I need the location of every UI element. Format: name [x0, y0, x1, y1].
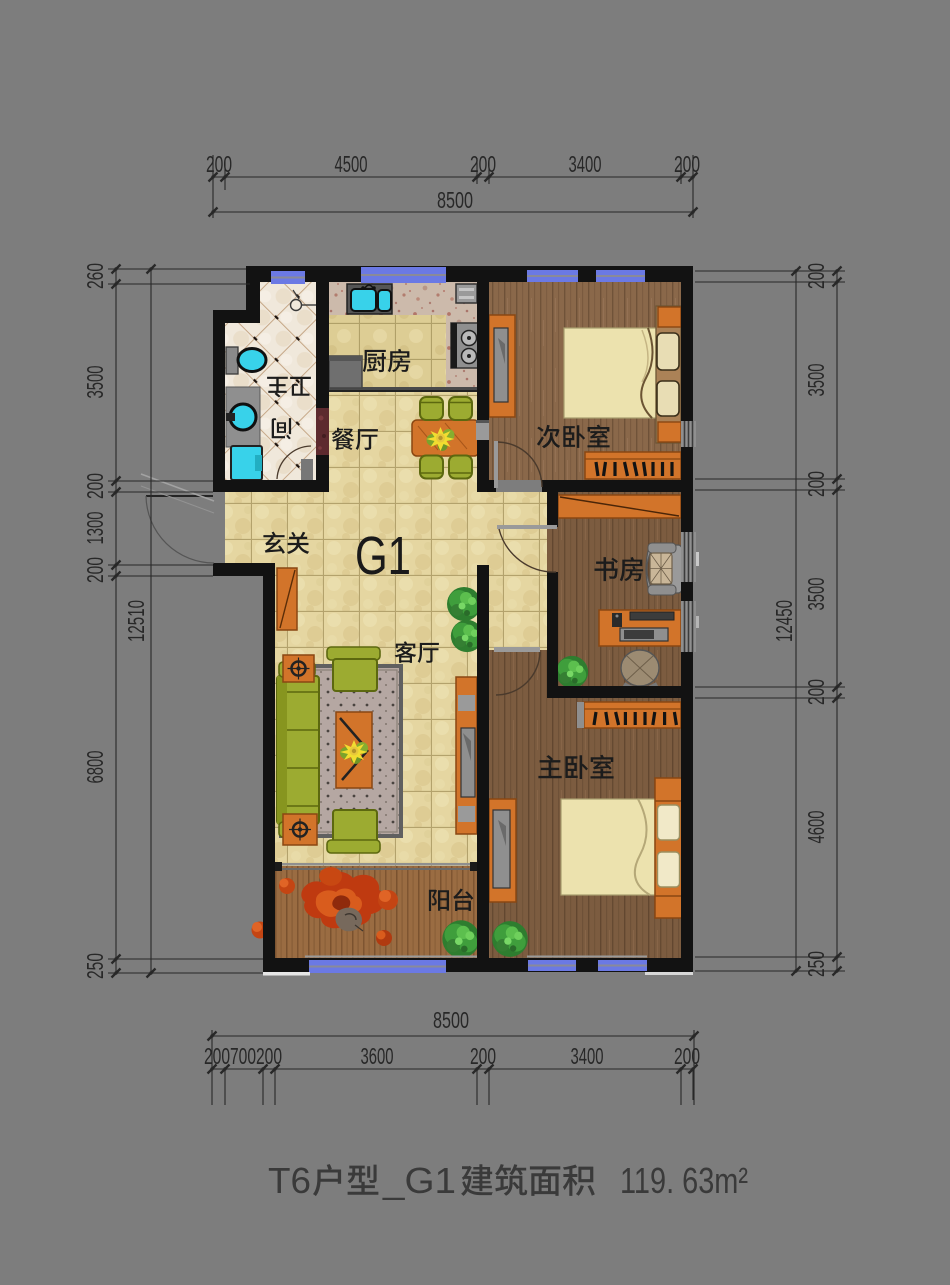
svg-text:200: 200 — [803, 471, 829, 497]
svg-text:200: 200 — [674, 1043, 700, 1069]
svg-text:4500: 4500 — [335, 151, 368, 177]
svg-text:4600: 4600 — [803, 811, 829, 844]
svg-text:119. 63m²: 119. 63m² — [620, 1160, 748, 1201]
svg-text:250: 250 — [82, 953, 108, 979]
svg-text:200: 200 — [82, 557, 108, 583]
svg-text:700: 700 — [230, 1043, 256, 1069]
svg-text:12510: 12510 — [123, 600, 149, 642]
svg-text:3600: 3600 — [361, 1043, 394, 1069]
svg-text:T6: T6 — [268, 1160, 311, 1201]
svg-text:200: 200 — [204, 1043, 230, 1069]
svg-text:3500: 3500 — [82, 366, 108, 399]
svg-text:8500: 8500 — [437, 187, 473, 213]
svg-text:250: 250 — [803, 951, 829, 977]
svg-text:200: 200 — [803, 679, 829, 705]
svg-text:8500: 8500 — [433, 1007, 469, 1033]
svg-text:1300: 1300 — [82, 512, 108, 545]
svg-text:200: 200 — [470, 151, 496, 177]
svg-text:3400: 3400 — [569, 151, 602, 177]
svg-text:260: 260 — [82, 263, 108, 289]
svg-text:3500: 3500 — [803, 578, 829, 611]
svg-text:3500: 3500 — [803, 364, 829, 397]
svg-text:200: 200 — [256, 1043, 282, 1069]
svg-text:6800: 6800 — [82, 751, 108, 784]
svg-text:200: 200 — [82, 473, 108, 499]
svg-text:200: 200 — [674, 151, 700, 177]
svg-text:_G1: _G1 — [382, 1160, 456, 1201]
svg-text:200: 200 — [470, 1043, 496, 1069]
svg-text:200: 200 — [803, 263, 829, 289]
svg-text:G1: G1 — [355, 526, 411, 586]
svg-text:12450: 12450 — [771, 600, 797, 642]
svg-text:3400: 3400 — [571, 1043, 604, 1069]
svg-text:200: 200 — [206, 151, 232, 177]
